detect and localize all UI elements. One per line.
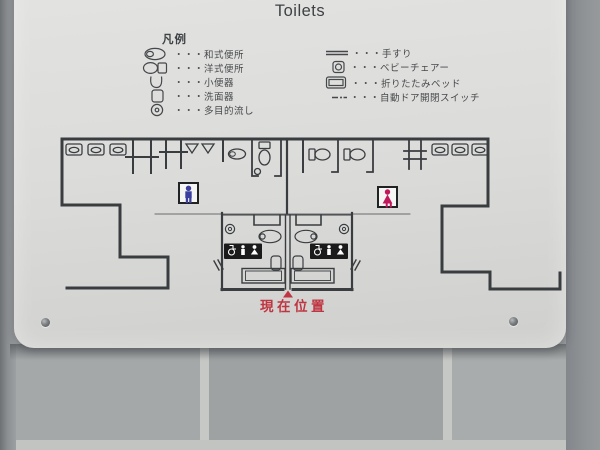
legend-label: ・・・折りたたみベッド: [351, 76, 461, 90]
tile-grout-line: [0, 440, 600, 450]
sign-title: Toilets: [240, 2, 360, 21]
washbasin-row-right: [432, 144, 488, 155]
partition-frame: [404, 141, 426, 169]
photo-of-toilet-floorplan-sign: Toilets 凡例 ・・・和式便所 ・・・洋式便所 ・・・小便器 ・・・洗面器…: [0, 0, 600, 450]
western-toilet-icon: [142, 61, 172, 75]
partition-frame: [160, 141, 187, 168]
folding-bed-symbol: [242, 269, 334, 284]
stall-partition: [332, 139, 338, 172]
western-toilet-symbol: [344, 149, 365, 160]
multipurpose-sink-symbol: [342, 227, 345, 230]
current-location-arrow: [283, 291, 293, 298]
legend-item-baby-chair: ・・・ベビーチェアー: [330, 60, 449, 74]
western-toilet-symbol: [255, 142, 271, 175]
door-recess: [296, 215, 321, 225]
male-figure-icon: [179, 183, 198, 203]
legend-item-multipurpose-sink: ・・・多目的流し: [148, 103, 254, 117]
adult-with-child-icon: [327, 249, 331, 255]
auto-door-switch-icon: [330, 91, 348, 103]
multipurpose-sink-symbol: [228, 227, 231, 230]
plan-outer-wall-right: [442, 139, 560, 289]
plan-room-divider: [286, 215, 291, 289]
legend-item-washbasin: ・・・洗面器: [146, 89, 234, 103]
floor-plan: 現在位置: [45, 125, 575, 330]
squat-toilet-symbol: [229, 149, 246, 159]
multipurpose-sink-symbol: [339, 224, 348, 233]
accessible-sign-plaque: [310, 244, 348, 260]
door-recess: [254, 215, 280, 225]
plan-outer-wall-left: [62, 139, 488, 288]
legend-label: ・・・洋式便所: [174, 61, 244, 75]
washbasin-symbol: [259, 230, 317, 242]
baby-change-icon: [253, 245, 257, 249]
accessible-sign-plaque: [224, 244, 262, 260]
legend-label: ・・・自動ドア開閉スイッチ: [350, 90, 480, 104]
legend-item-auto-door-switch: ・・・自動ドア開閉スイッチ: [330, 90, 480, 104]
legend-item-squat-toilet: ・・・和式便所: [142, 47, 244, 61]
baby-chair-icon: [330, 60, 348, 74]
folding-bed-icon: [325, 75, 349, 90]
legend-label: ・・・多目的流し: [174, 103, 254, 117]
urinal-symbol: [202, 144, 214, 153]
stall-partition: [367, 139, 373, 172]
squat-toilet-symbol: [230, 152, 236, 156]
squat-toilet-icon: [142, 47, 172, 61]
adult-with-child-icon: [241, 249, 245, 255]
legend-label: ・・・洗面器: [174, 89, 234, 103]
female-figure-icon: [378, 187, 397, 208]
multipurpose-sink-icon: [148, 103, 172, 117]
stall-partition: [275, 139, 281, 176]
legend-item-urinal: ・・・小便器: [146, 75, 234, 89]
legend-item-western-toilet: ・・・洋式便所: [142, 61, 244, 75]
legend-label: ・・・手すり: [352, 46, 412, 60]
legend-item-handrail: ・・・手すり: [324, 46, 412, 60]
legend-label: ・・・和式便所: [174, 47, 244, 61]
current-location-label: 現在位置: [260, 298, 328, 314]
multipurpose-sink-symbol: [225, 224, 234, 233]
washbasin-icon: [146, 89, 172, 103]
urinal-icon: [146, 75, 172, 89]
western-toilet-symbol: [309, 149, 330, 160]
adult-with-child-icon: [327, 245, 330, 248]
legend-label: ・・・小便器: [174, 75, 234, 89]
handrail-icon: [324, 47, 350, 59]
legend-label: ・・・ベビーチェアー: [350, 60, 449, 74]
legend-heading: 凡例: [162, 31, 187, 47]
baby-change-icon: [339, 245, 343, 249]
washbasin-row-left: [66, 144, 126, 155]
partition-frame: [126, 141, 158, 173]
legend-item-folding-bed: ・・・折りたたみベッド: [325, 75, 461, 90]
adult-with-child-icon: [241, 245, 244, 248]
